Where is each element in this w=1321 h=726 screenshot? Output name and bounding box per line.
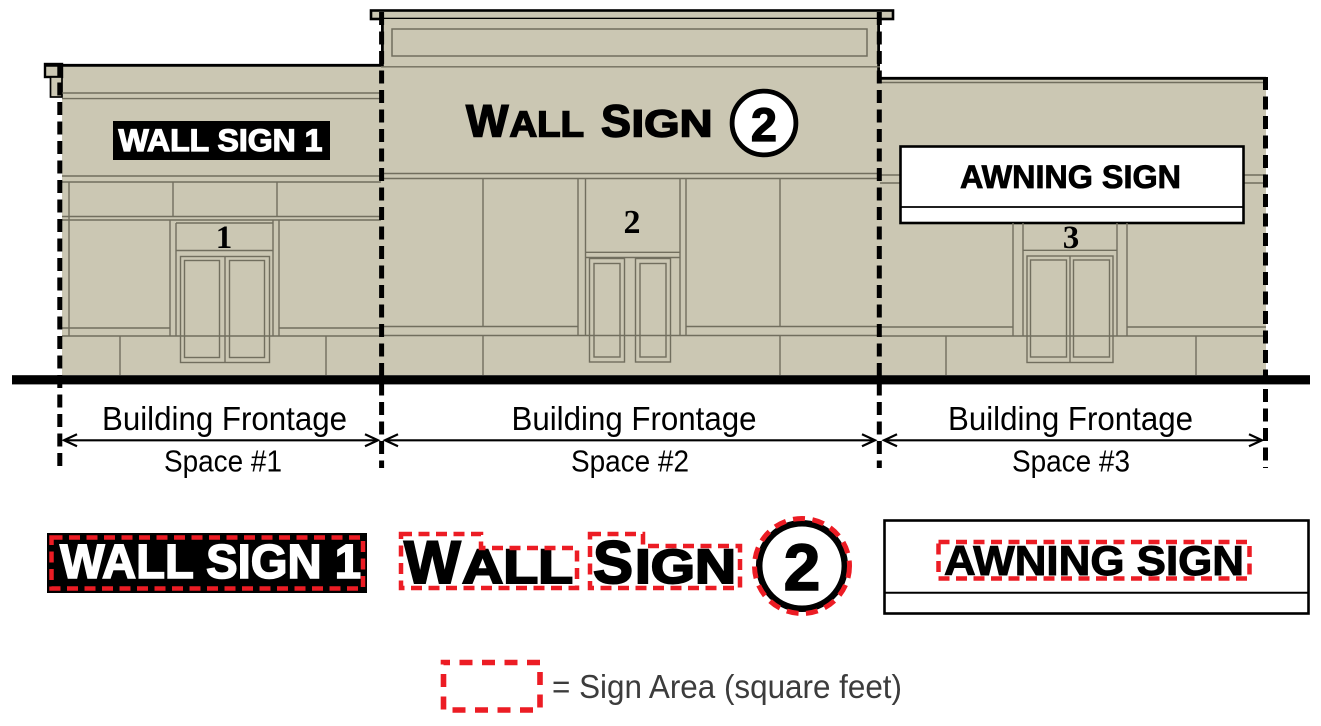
svg-text:Space #2: Space #2 (571, 444, 689, 479)
svg-text:2: 2 (784, 530, 821, 604)
svg-text:AWNING SIGN: AWNING SIGN (960, 159, 1181, 195)
svg-text:Space #1: Space #1 (164, 444, 282, 479)
svg-text:= Sign Area (square feet): = Sign Area (square feet) (552, 668, 902, 705)
svg-text:Building Frontage: Building Frontage (948, 400, 1193, 437)
svg-text:Building Frontage: Building Frontage (102, 400, 347, 437)
svg-text:2: 2 (751, 98, 777, 151)
svg-text:Building Frontage: Building Frontage (512, 400, 757, 437)
svg-text:W: W (466, 96, 509, 147)
svg-text:WALL SIGN 1: WALL SIGN 1 (60, 536, 361, 589)
svg-text:2: 2 (624, 204, 641, 241)
svg-text:AWNING SIGN: AWNING SIGN (944, 537, 1244, 584)
svg-text:3: 3 (1063, 220, 1080, 256)
svg-text:ALL: ALL (510, 104, 585, 145)
svg-text:IGN: IGN (632, 104, 713, 146)
svg-text:S: S (601, 96, 631, 147)
svg-text:1: 1 (216, 220, 233, 256)
svg-text:WALL SIGN 1: WALL SIGN 1 (119, 122, 323, 158)
svg-text:IGN: IGN (635, 541, 736, 594)
svg-text:Space #3: Space #3 (1012, 444, 1130, 479)
